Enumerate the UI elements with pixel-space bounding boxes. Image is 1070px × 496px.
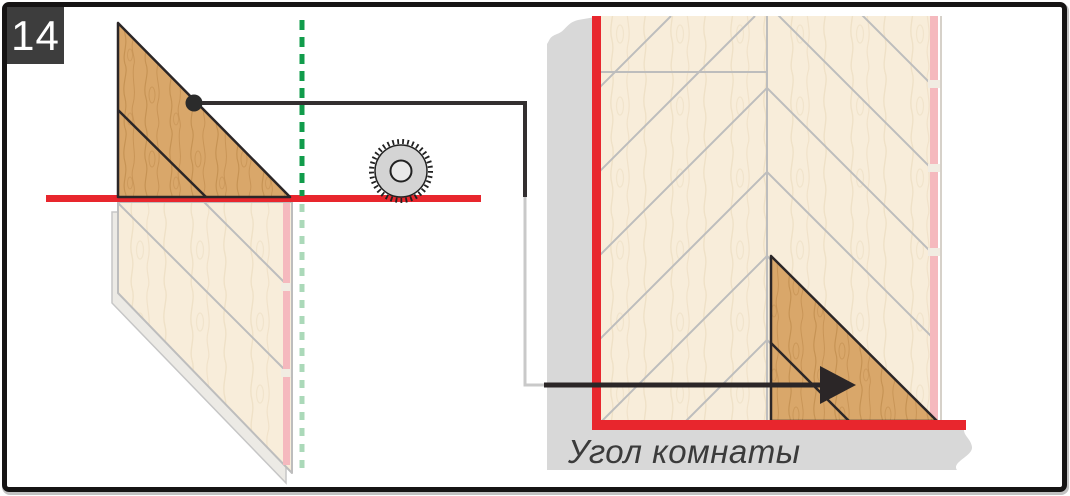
parquet-edge-notch bbox=[928, 80, 940, 88]
leader-dot-icon bbox=[186, 95, 203, 112]
plank-edge-pink bbox=[283, 203, 290, 465]
plank-edge-notch bbox=[281, 283, 291, 291]
saw-blade-icon bbox=[372, 142, 431, 201]
wood-triangle-piece bbox=[118, 23, 290, 197]
step-number: 14 bbox=[11, 15, 60, 57]
caption-room-corner: Угол комнаты bbox=[568, 433, 868, 471]
parquet-field bbox=[601, 16, 938, 421]
plank-edge-notch bbox=[281, 369, 291, 377]
room-corner-diagram bbox=[266, 0, 1070, 496]
saw-arbor-hole bbox=[391, 161, 412, 182]
step-number-badge: 14 bbox=[7, 7, 64, 64]
plank-remainder bbox=[118, 202, 292, 473]
leader-line-gray bbox=[525, 197, 546, 385]
instruction-figure: 14 Угол комнаты bbox=[0, 0, 1070, 496]
diagram-canvas bbox=[0, 0, 1070, 496]
parquet-edge-notch bbox=[928, 248, 940, 256]
parquet-edge-pink bbox=[930, 16, 938, 421]
red-wall-line-vertical bbox=[592, 16, 601, 430]
cut-piece-diagram bbox=[46, 20, 546, 483]
red-wall-line-horizontal bbox=[592, 420, 966, 430]
parquet-edge-notch bbox=[928, 164, 940, 172]
